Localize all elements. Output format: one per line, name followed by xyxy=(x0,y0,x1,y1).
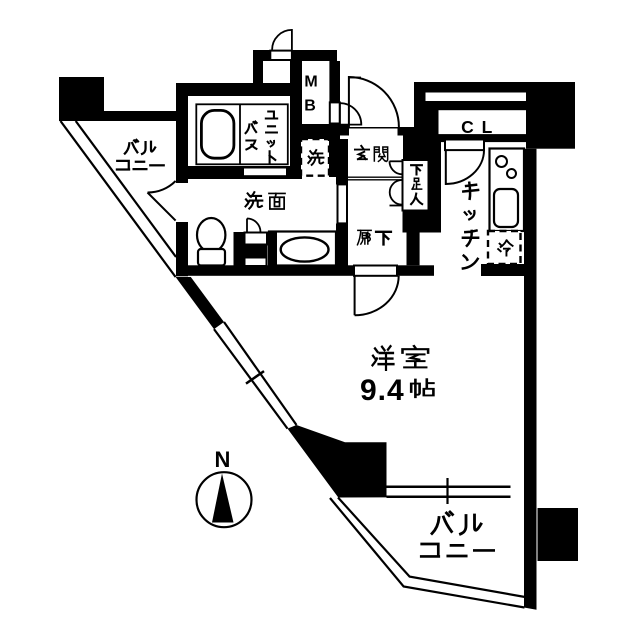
svg-text:N: N xyxy=(215,447,231,472)
svg-text:M: M xyxy=(304,74,317,91)
svg-text:9.4: 9.4 xyxy=(360,374,405,407)
svg-text:L: L xyxy=(482,117,493,137)
svg-text:B: B xyxy=(304,98,316,115)
svg-text:C: C xyxy=(461,117,474,137)
